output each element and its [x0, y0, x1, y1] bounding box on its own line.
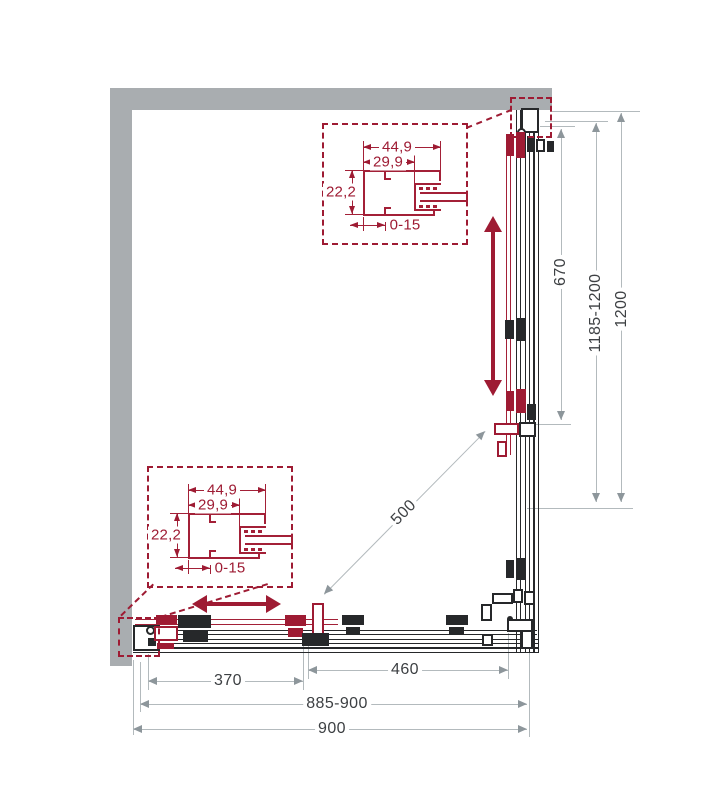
roller-bracket — [547, 141, 554, 152]
profile-adjust-range-label: 0-15 — [212, 560, 249, 577]
profile-adjust-range-label: 0-15 — [387, 217, 424, 234]
roller-bracket — [302, 633, 329, 646]
glass-panel — [245, 535, 293, 537]
roller-bracket — [516, 558, 526, 580]
roller-bracket — [516, 318, 526, 341]
corner-fitting — [519, 422, 536, 437]
door-handle-fitting — [494, 423, 519, 435]
glass-panel — [420, 200, 468, 202]
roller-bracket — [285, 615, 306, 626]
roller-bracket — [506, 391, 514, 411]
front-total-dim-label: 900 — [315, 720, 349, 738]
profile-depth-label: 22,2 — [148, 527, 184, 544]
roller-bracket — [178, 615, 211, 628]
roller-bracket — [536, 139, 545, 152]
glass-panel — [245, 543, 293, 545]
profile-detail-callout-bottom: 44,9 29,9 22,2 0-15 — [147, 466, 293, 588]
profile-inner-width-label: 29,9 — [370, 154, 406, 171]
arrow-down-head — [484, 380, 502, 396]
wall-top-section — [110, 88, 552, 110]
door-handle-fitting — [312, 603, 324, 635]
corner-bracket — [524, 591, 535, 605]
profile-detail-callout-top: 44,9 29,9 22,2 0-15 — [322, 123, 468, 245]
roller-bracket — [288, 628, 303, 637]
front-adjust-dim-label: 885-900 — [303, 695, 371, 713]
corner-bracket — [481, 604, 492, 621]
door-end-hook — [497, 441, 507, 457]
roller-bracket — [446, 615, 468, 625]
arrow-right-head — [266, 595, 281, 613]
source-box-bottom — [118, 617, 160, 657]
source-box-top — [510, 97, 552, 138]
side-adjust-dim-label: 1185-1200 — [587, 271, 605, 356]
roller-bracket — [516, 389, 526, 413]
front-door-glass-line — [135, 624, 338, 625]
front-fixed-dim-label: 460 — [388, 661, 422, 679]
technical-drawing-canvas: 670 1185-1200 1200 370 460 885 — [0, 0, 711, 800]
roller-bracket — [506, 560, 514, 578]
side-fixed-dim-label: 670 — [552, 255, 570, 289]
slide-arrow-vertical — [484, 216, 502, 396]
corner-connector — [521, 630, 533, 649]
profile-depth-label: 22,2 — [323, 184, 359, 201]
corner-bracket — [482, 634, 493, 646]
roller-bracket — [527, 136, 535, 152]
front-door-dim-label: 370 — [211, 672, 245, 690]
glass-panel — [420, 192, 468, 194]
roller-bracket — [527, 404, 536, 420]
corner-bracket — [492, 593, 513, 604]
roller-bracket — [346, 627, 360, 634]
diagonal-dimension: 500 — [324, 431, 485, 594]
profile-inner-width-label: 29,9 — [195, 497, 231, 514]
roller-bracket — [183, 630, 208, 642]
corner-bracket — [513, 589, 523, 603]
leader-line — [466, 109, 512, 129]
wall-left-section — [110, 88, 132, 666]
side-total-dim-label: 1200 — [613, 287, 631, 330]
roller-bracket — [342, 615, 364, 625]
roller-bracket — [505, 320, 514, 339]
roller-bracket — [449, 627, 464, 634]
